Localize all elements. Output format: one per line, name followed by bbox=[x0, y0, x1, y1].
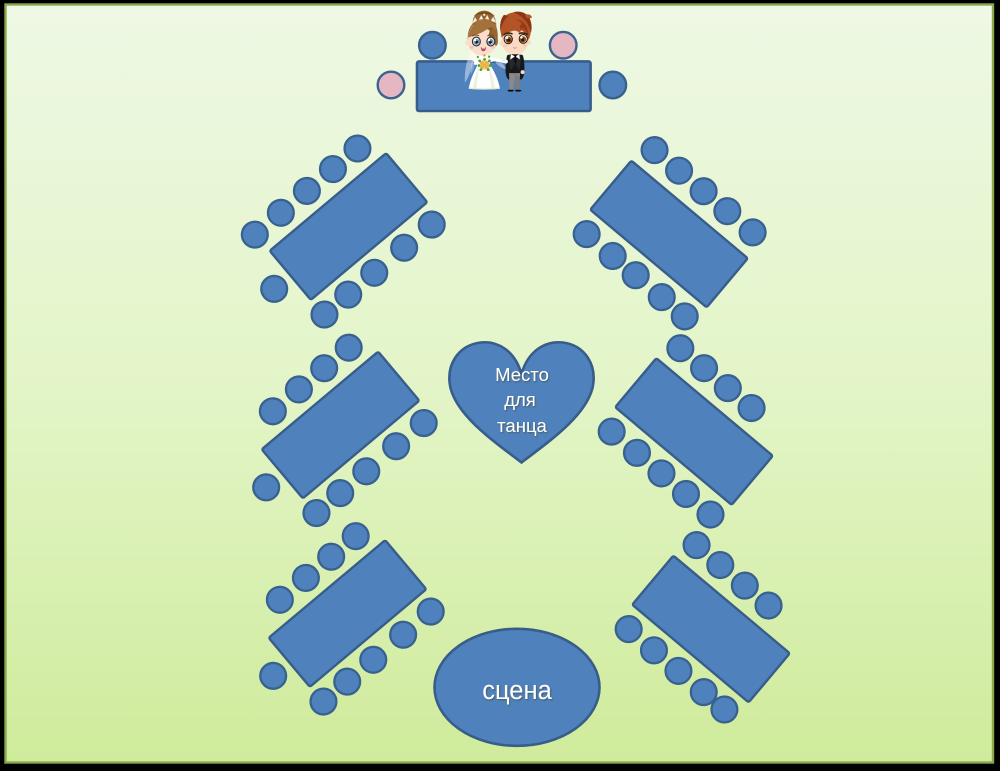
svg-text:танца: танца bbox=[497, 415, 547, 436]
svg-text:сцена: сцена bbox=[482, 677, 552, 705]
svg-text:Место: Место bbox=[495, 364, 549, 385]
svg-text:для: для bbox=[504, 389, 536, 410]
